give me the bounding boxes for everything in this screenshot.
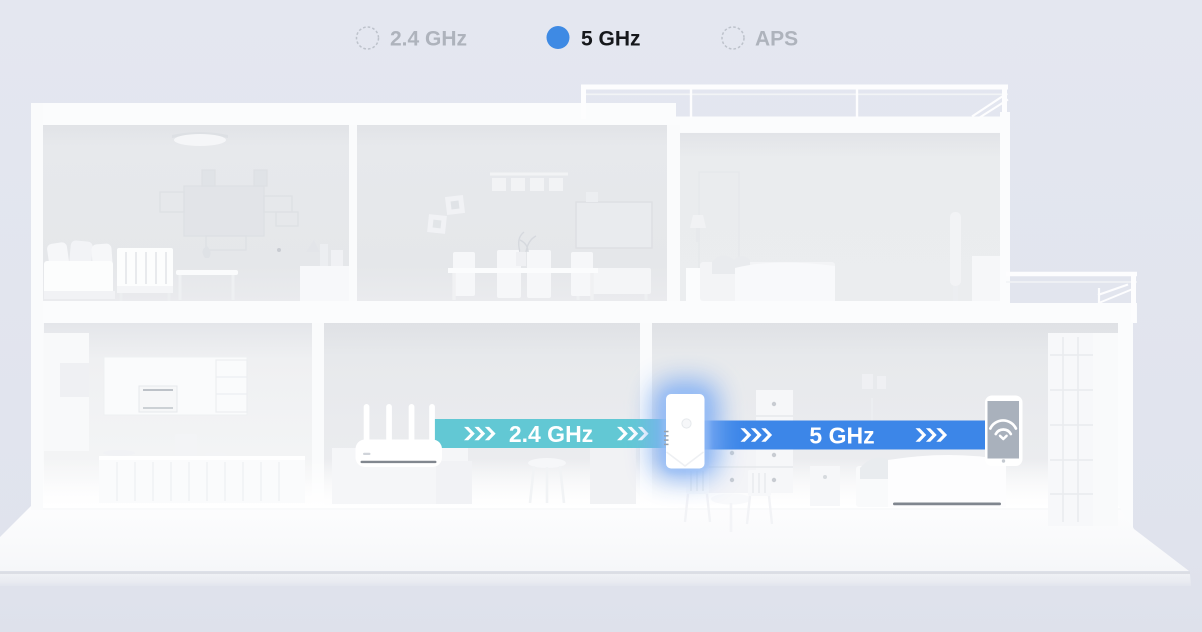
svg-text:2.4 GHz: 2.4 GHz: [509, 421, 593, 447]
svg-text:APS: APS: [755, 28, 798, 51]
svg-text:2.4 GHz: 2.4 GHz: [390, 28, 467, 51]
svg-text:5 GHz: 5 GHz: [809, 423, 874, 449]
svg-text:5 GHz: 5 GHz: [581, 28, 641, 51]
